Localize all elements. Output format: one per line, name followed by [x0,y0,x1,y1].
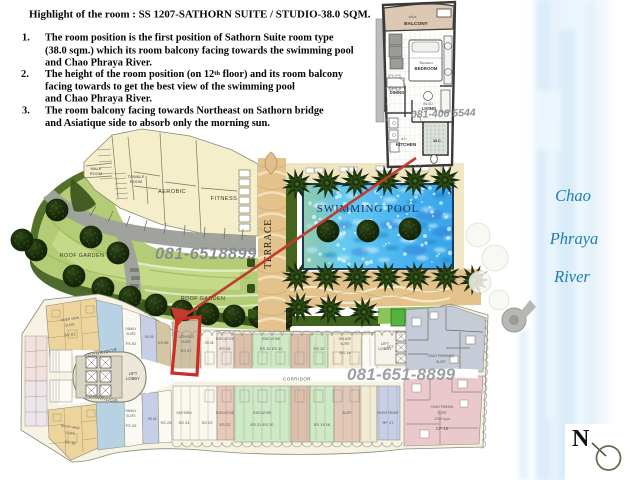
svg-text:175.0 sq.m: 175.0 sq.m [434,417,450,421]
svg-text:W.C: W.C [433,138,441,143]
svg-text:ห้องอาหาร: ห้องอาหาร [389,86,405,90]
svg-text:FS 02: FS 02 [126,341,137,346]
svg-text:SUITE: SUITE [437,411,446,415]
svg-text:ES 21 ES 20: ES 21 ES 20 [251,422,275,427]
svg-text:facing towards to get the best: facing towards to get the best view of t… [45,82,295,93]
svg-text:FAMILY: FAMILY [125,409,137,413]
svg-text:CHAO PHRAYA: CHAO PHRAYA [431,405,455,409]
svg-text:SATHORN: SATHORN [178,335,194,339]
svg-text:SUITE: SUITE [181,340,190,344]
svg-text:N: N [572,426,590,452]
svg-text:LIFT: LIFT [387,345,394,349]
svg-text:Chao: Chao [555,186,591,205]
svg-text:EXECUTIVE: EXECUTIVE [262,337,280,341]
svg-text:081-651-8899: 081-651-8899 [347,365,456,384]
svg-text:SWIMMING POOL: SWIMMING POOL [317,203,419,215]
svg-text:2.: 2. [21,69,29,80]
svg-text:and Chao Phraya River.: and Chao Phraya River. [45,58,152,69]
svg-text:FS 29: FS 29 [126,423,137,428]
svg-text:CORRIDOR: CORRIDOR [283,377,311,382]
svg-text:ครัว: ครัว [401,137,407,141]
svg-text:3.: 3. [22,106,30,117]
svg-text:SATHORN: SATHORN [176,411,192,415]
svg-text:LOBBY: LOBBY [126,376,140,381]
svg-text:ห้องนอน: ห้องนอน [419,60,433,65]
svg-text:SUITE: SUITE [340,342,349,346]
svg-text:1.: 1. [22,33,30,44]
svg-text:SUITE: SUITE [342,411,351,415]
svg-text:KITCHEN: KITCHEN [396,142,417,147]
svg-text:FAMILY: FAMILY [125,327,137,331]
svg-text:SUITE: SUITE [126,414,135,418]
svg-text:The room position is the first: The room position is the first position … [45,33,334,44]
svg-text:(38.0 sqm.) which its room bal: (38.0 sqm.) which its room balcony facin… [45,46,354,57]
svg-text:and Asiatique side to absorb o: and Asiatique side to absorb only the mo… [45,118,270,129]
svg-text:SS 24: SS 24 [179,420,191,425]
svg-text:BEDROOM: BEDROOM [415,66,438,71]
svg-text:EXECUTIVE: EXECUTIVE [216,411,234,415]
svg-text:CP 16: CP 16 [436,426,449,431]
svg-text:The room balcony facing toward: The room balcony facing towards Northeas… [45,106,324,117]
svg-text:RF 17: RF 17 [383,420,395,425]
svg-text:and Chao Phraya River.: and Chao Phraya River. [45,94,152,105]
svg-text:ES 10 ES 11: ES 10 ES 11 [260,346,283,351]
svg-text:081-6518899: 081-6518899 [155,245,257,263]
svg-text:ES 19 18: ES 19 18 [314,422,331,427]
svg-text:Phraya: Phraya [549,229,599,248]
svg-text:EXECUTIVE: EXECUTIVE [216,337,234,341]
svg-text:AEROBIC: AEROBIC [158,189,186,195]
svg-text:ES 09: ES 09 [220,346,232,351]
svg-text:SS 07: SS 07 [181,348,193,353]
svg-text:ROOM: ROOM [130,179,142,184]
svg-text:SUITE: SUITE [126,332,135,336]
svg-text:The height of the room positio: The height of the room position (on 12th… [45,69,344,80]
svg-text:RIVER FRONT: RIVER FRONT [377,411,399,415]
svg-text:SUITE: SUITE [436,360,445,364]
svg-text:DS 14: DS 14 [339,350,351,355]
svg-text:SS 26: SS 26 [148,417,157,421]
svg-text:SS 05: SS 05 [145,335,154,339]
svg-text:SS 08: SS 08 [205,341,214,345]
svg-text:081-406 5544: 081-406 5544 [411,107,476,121]
svg-text:SS 06: SS 06 [158,340,170,345]
svg-text:Highlight of the room : SS 120: Highlight of the room : SS 1207-SATHORN … [29,9,371,21]
svg-text:ROOF GARDEN: ROOF GARDEN [60,253,105,259]
svg-text:ES 12: ES 12 [314,346,326,351]
svg-text:EXECUTIVE: EXECUTIVE [253,411,271,415]
svg-text:DELUXE: DELUXE [339,337,352,341]
svg-text:BALCONY: BALCONY [404,21,429,27]
svg-text:SS 25: SS 25 [161,420,173,425]
svg-text::vāúa: :vāúa [408,15,417,19]
svg-text:River: River [553,267,590,286]
svg-text:SS 23: SS 23 [202,420,214,425]
svg-text:ROOM: ROOM [90,171,102,176]
svg-text:CHAO PHRAYA(II): CHAO PHRAYA(II) [428,354,455,358]
svg-text:FITNESS: FITNESS [211,196,237,202]
svg-text:DINING: DINING [390,90,405,95]
svg-text:ES 22: ES 22 [220,422,232,427]
